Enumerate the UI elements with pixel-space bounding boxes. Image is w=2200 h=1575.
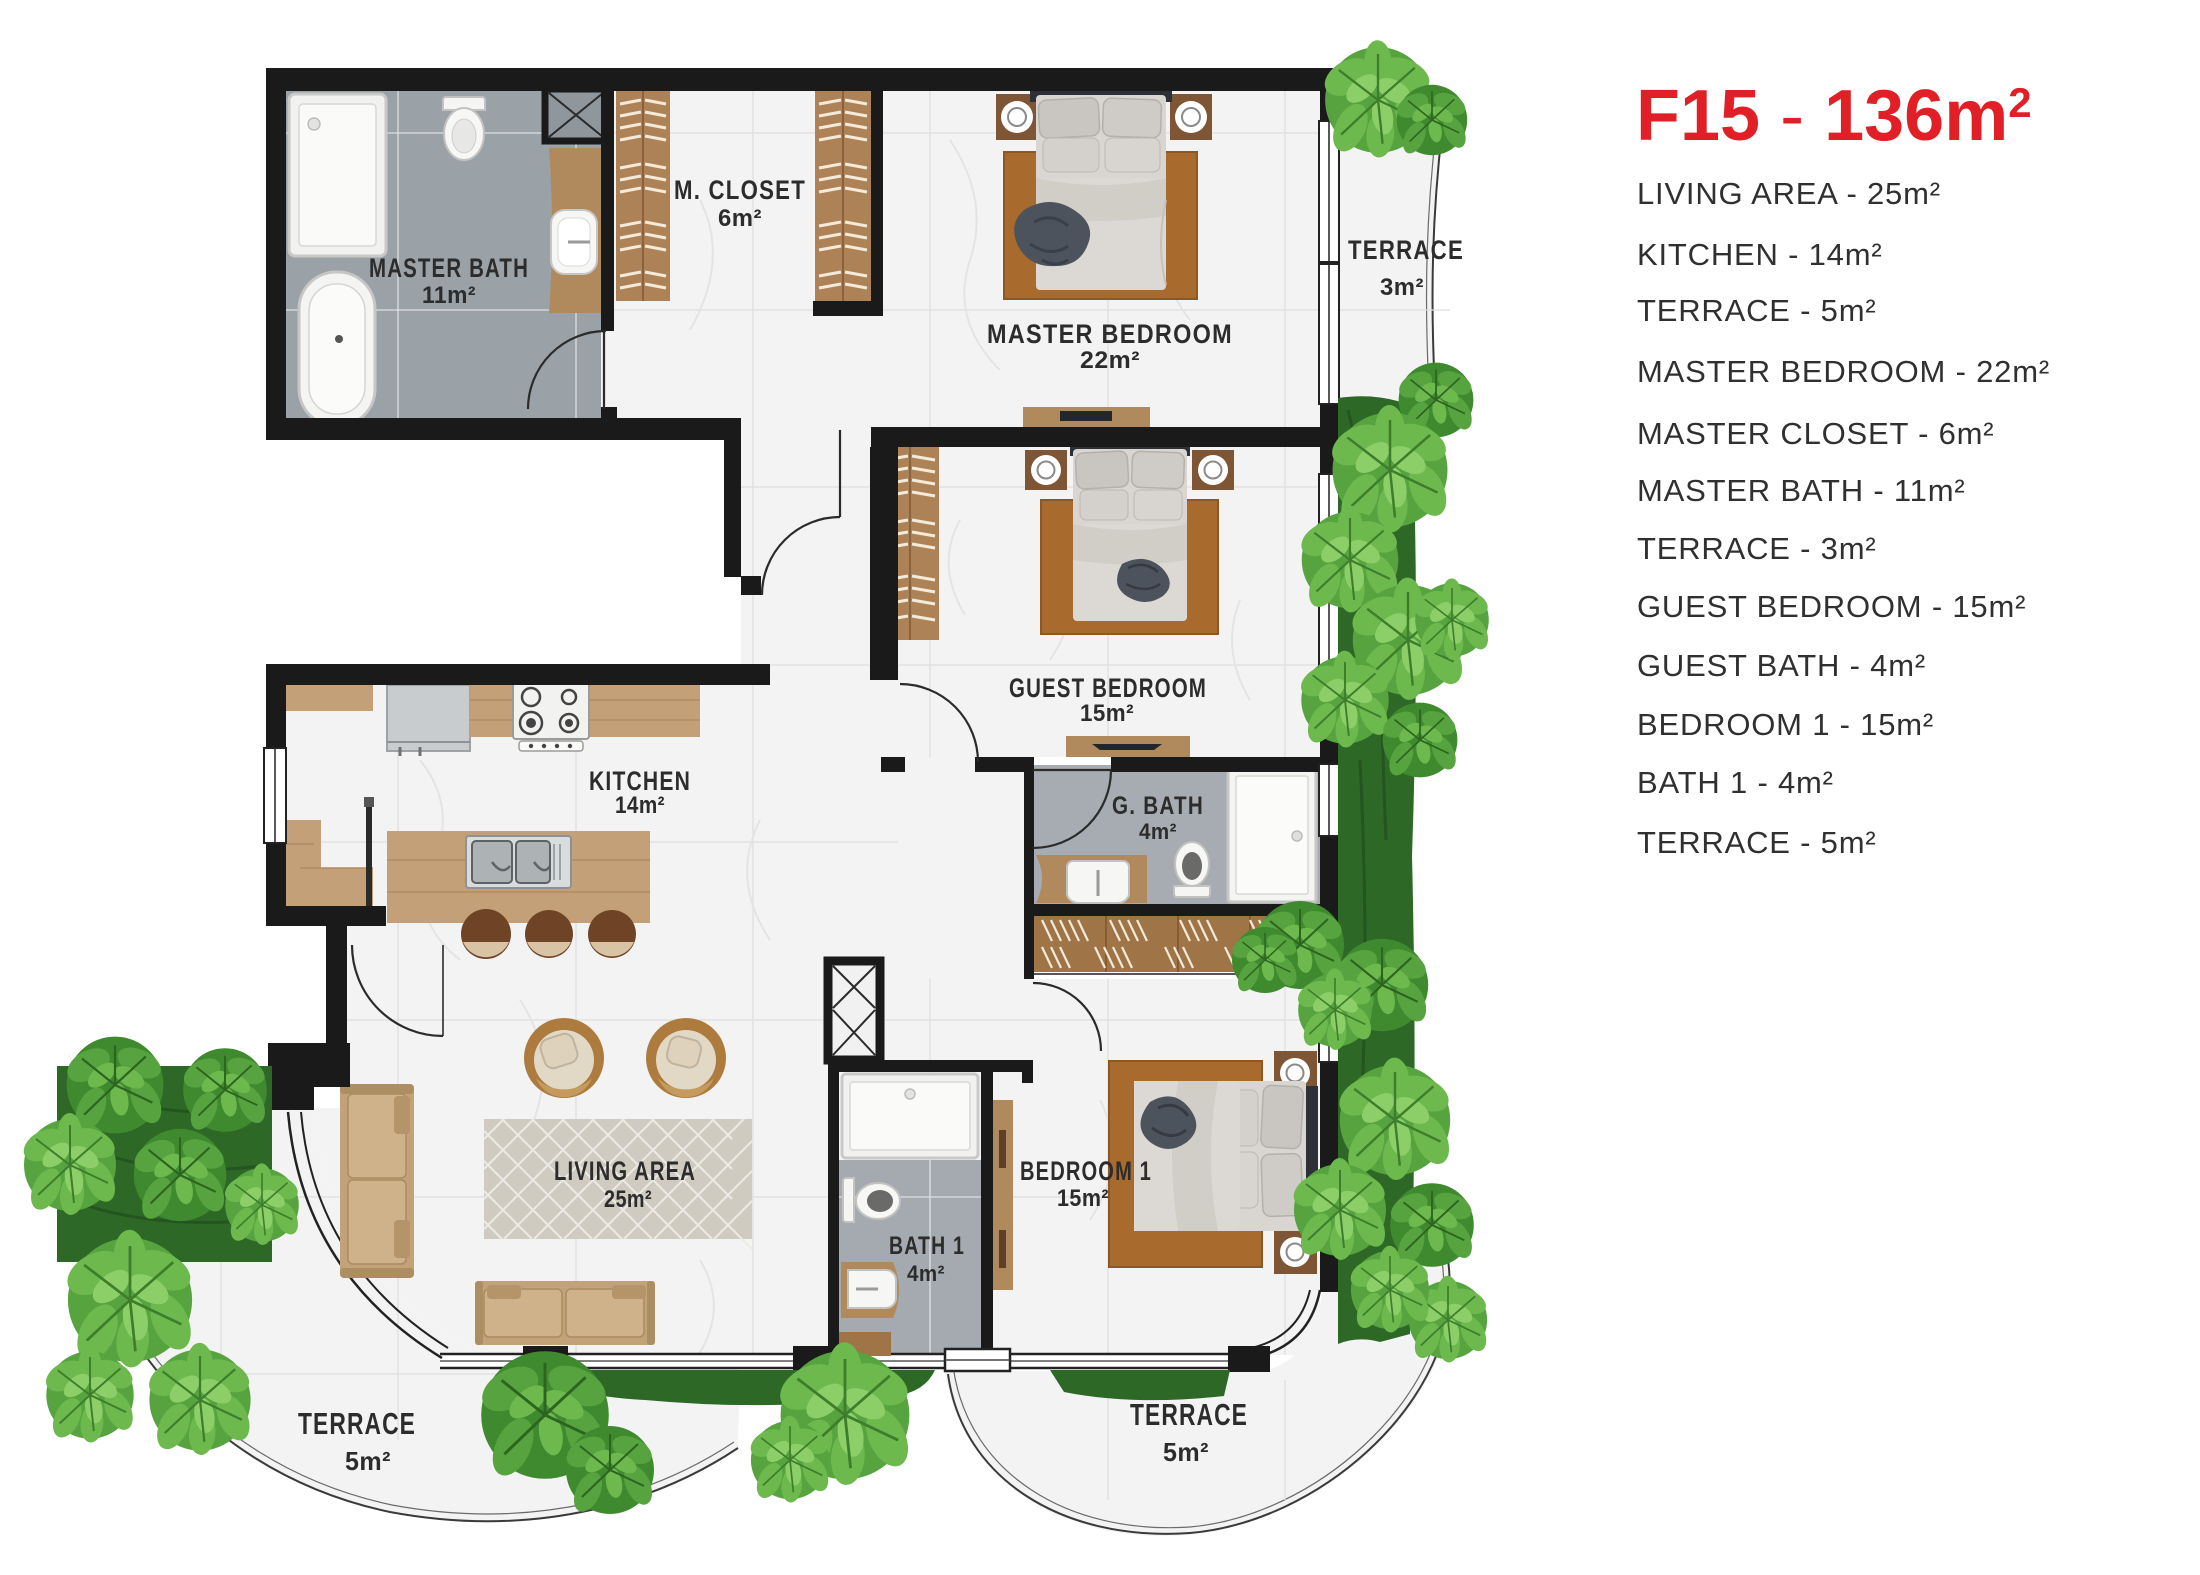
svg-text:25m²: 25m²: [604, 1186, 652, 1213]
svg-text:5m²: 5m²: [345, 1446, 391, 1476]
svg-text:GUEST BEDROOM - 15m²: GUEST BEDROOM - 15m²: [1637, 589, 2026, 624]
svg-text:G. BATH: G. BATH: [1112, 792, 1204, 820]
svg-text:15m²: 15m²: [1057, 1185, 1109, 1212]
svg-text:11m²: 11m²: [422, 282, 476, 309]
svg-text:6m²: 6m²: [718, 205, 762, 232]
svg-text:TERRACE - 5m²: TERRACE - 5m²: [1637, 825, 1876, 860]
svg-text:TERRACE - 3m²: TERRACE - 3m²: [1637, 531, 1876, 566]
svg-text:M. CLOSET: M. CLOSET: [674, 175, 806, 205]
svg-text:LIVING AREA - 25m²: LIVING AREA - 25m²: [1637, 176, 1941, 211]
svg-text:TERRACE - 5m²: TERRACE - 5m²: [1637, 293, 1876, 328]
svg-text:22m²: 22m²: [1080, 347, 1140, 374]
svg-text:14m²: 14m²: [615, 792, 665, 819]
svg-text:MASTER CLOSET - 6m²: MASTER CLOSET - 6m²: [1637, 416, 1994, 451]
svg-text:BEDROOM 1 - 15m²: BEDROOM 1 - 15m²: [1637, 707, 1934, 742]
svg-text:MASTER BEDROOM - 22m²: MASTER BEDROOM - 22m²: [1637, 354, 2050, 389]
svg-text:4m²: 4m²: [907, 1261, 945, 1286]
svg-text:3m²: 3m²: [1380, 274, 1424, 301]
svg-text:BATH 1 - 4m²: BATH 1 - 4m²: [1637, 765, 1834, 800]
svg-text:5m²: 5m²: [1163, 1437, 1209, 1467]
svg-text:F15 - 136m2: F15 - 136m2: [1636, 76, 2032, 156]
svg-text:GUEST BEDROOM: GUEST BEDROOM: [1009, 673, 1207, 703]
svg-text:TERRACE: TERRACE: [1348, 235, 1464, 265]
svg-text:4m²: 4m²: [1139, 819, 1177, 844]
svg-text:GUEST BATH - 4m²: GUEST BATH - 4m²: [1637, 648, 1926, 683]
svg-text:TERRACE: TERRACE: [1130, 1397, 1248, 1432]
svg-text:MASTER BEDROOM: MASTER BEDROOM: [987, 319, 1233, 349]
svg-text:MASTER BATH: MASTER BATH: [369, 253, 529, 283]
svg-text:MASTER BATH - 11m²: MASTER BATH - 11m²: [1637, 473, 1965, 508]
svg-text:LIVING AREA: LIVING AREA: [554, 1156, 696, 1186]
svg-text:15m²: 15m²: [1080, 700, 1134, 727]
svg-text:BATH 1: BATH 1: [889, 1232, 965, 1260]
svg-text:BEDROOM 1: BEDROOM 1: [1020, 1156, 1152, 1186]
svg-text:KITCHEN - 14m²: KITCHEN - 14m²: [1637, 237, 1882, 272]
svg-text:TERRACE: TERRACE: [298, 1406, 416, 1441]
